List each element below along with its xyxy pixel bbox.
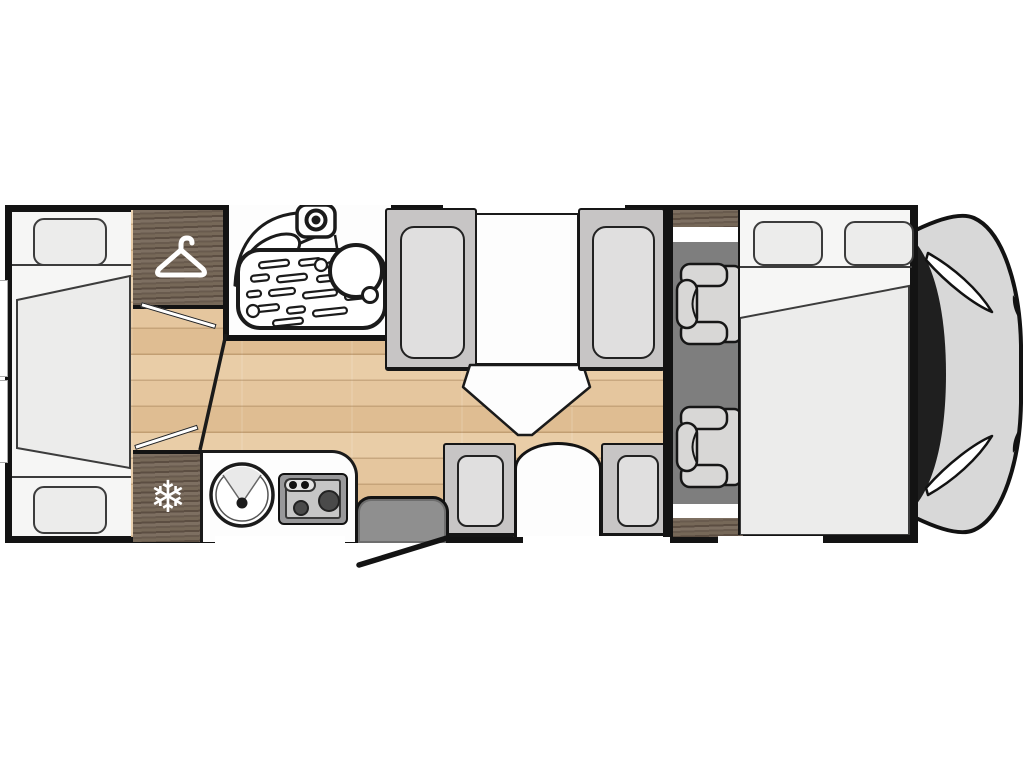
toilet-flush	[363, 288, 378, 303]
dinette-seat-left	[385, 208, 477, 371]
front-bed-area	[738, 210, 910, 535]
rear-bed-pillow-bottom	[33, 486, 107, 534]
wardrobe	[133, 210, 228, 309]
cab-seat-driver	[673, 260, 743, 348]
garage-hatch	[718, 536, 823, 543]
rear-bed-edge-bottom	[12, 476, 133, 478]
cab-step-top	[673, 227, 743, 242]
rear-window-top	[0, 280, 8, 377]
washroom-fixtures	[229, 205, 391, 335]
rear-bed-pillow-top	[33, 218, 107, 266]
washroom-door-line	[195, 330, 235, 455]
rear-bed-edge-top	[12, 264, 133, 266]
dinette-table	[475, 213, 579, 365]
dinette-seat-right	[578, 208, 665, 371]
hob	[278, 473, 348, 525]
side-seat-right	[601, 443, 669, 537]
rear-bed-duvet	[12, 271, 133, 481]
floorplan: ❄	[5, 205, 918, 543]
burner-large	[318, 490, 340, 512]
hob-controls	[284, 478, 316, 492]
dinette-table-extension	[457, 361, 597, 443]
cab-wood-bottom	[673, 518, 743, 537]
kitchen-block	[200, 450, 358, 542]
entry-door-swing	[353, 531, 453, 571]
cab-front	[913, 213, 1024, 535]
kitchen-window	[215, 536, 345, 543]
lower-window	[523, 536, 670, 543]
cab-wood-top	[673, 210, 743, 227]
rear-window-bottom	[0, 380, 8, 463]
burner-small	[293, 500, 309, 516]
fridge: ❄	[133, 450, 203, 542]
front-bed-pillow-right	[844, 221, 914, 266]
side-seat-left	[443, 443, 516, 537]
front-bed-edge	[740, 266, 912, 268]
front-bed-duvet	[740, 270, 912, 535]
hanger-icon	[151, 235, 211, 281]
snowflake-icon: ❄	[150, 476, 187, 520]
front-bed-pillow-left	[753, 221, 823, 266]
cab-partition	[663, 208, 673, 537]
side-table	[514, 442, 602, 537]
washroom	[223, 205, 397, 341]
sink-drain	[237, 498, 248, 509]
cab-seat-passenger	[673, 403, 743, 491]
page: { "app": { "type": "motorhome-floorplan-…	[0, 0, 1024, 768]
cab-step-bottom	[673, 504, 743, 518]
